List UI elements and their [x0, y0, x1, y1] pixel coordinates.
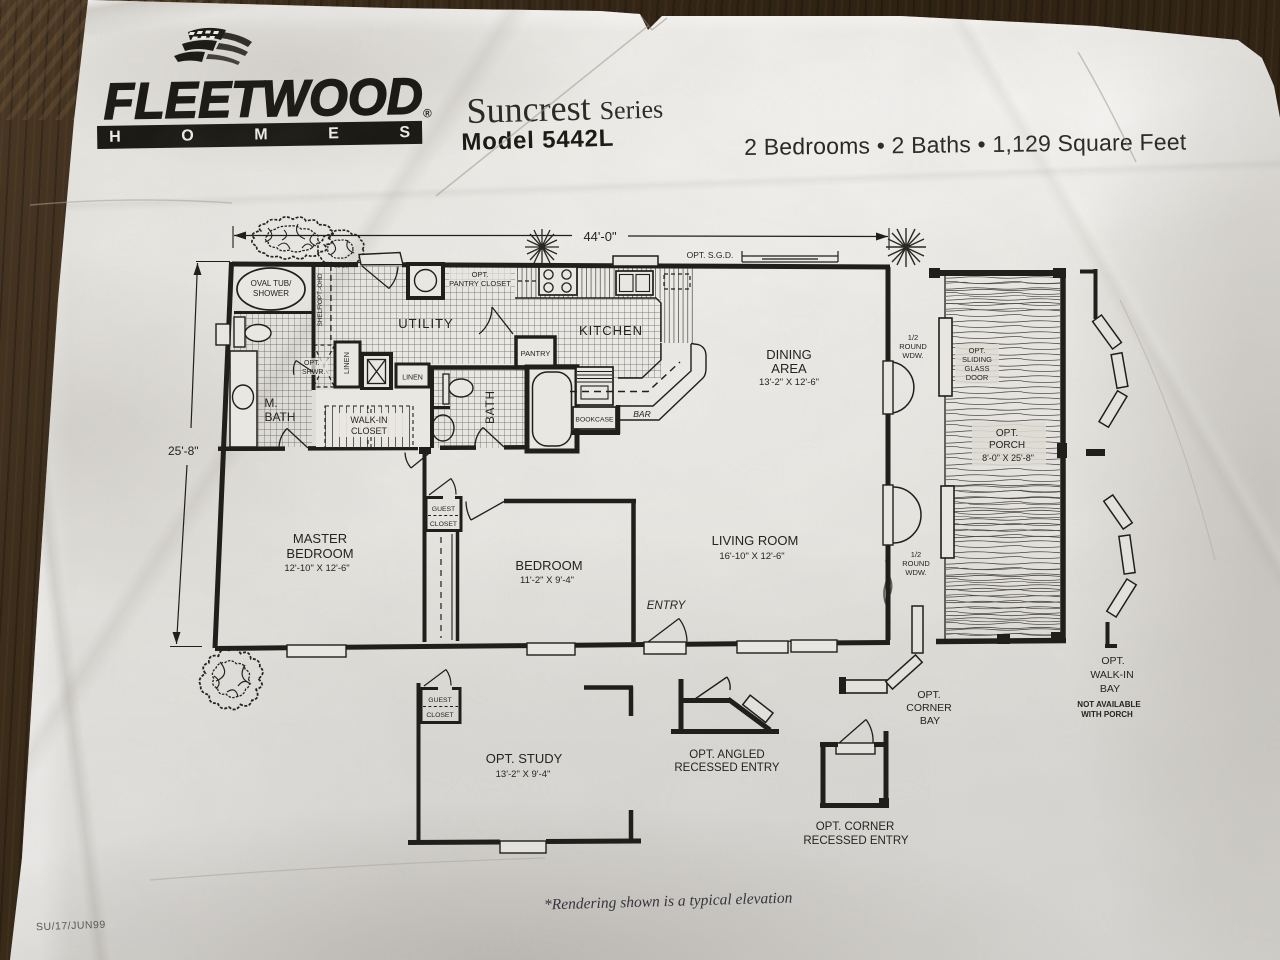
svg-text:SHWR.: SHWR. [302, 369, 325, 376]
svg-text:1/2: 1/2 [908, 333, 918, 342]
svg-text:OPT. ANGLED: OPT. ANGLED [689, 749, 764, 761]
svg-text:LINEN: LINEN [342, 352, 351, 374]
svg-text:AREA: AREA [771, 361, 807, 376]
svg-text:BAY: BAY [920, 715, 940, 727]
svg-text:CLOSET: CLOSET [351, 426, 388, 436]
svg-text:OPT.: OPT. [472, 270, 489, 279]
svg-text:BOOKCASE: BOOKCASE [575, 417, 614, 424]
svg-text:16'-10" X 12'-6": 16'-10" X 12'-6" [719, 551, 784, 562]
svg-text:KITCHEN: KITCHEN [579, 323, 643, 338]
svg-text:PANTRY: PANTRY [521, 349, 551, 358]
svg-text:8'-0" X 25'-8": 8'-0" X 25'-8" [982, 453, 1034, 463]
svg-text:RECESSED ENTRY: RECESSED ENTRY [803, 835, 909, 847]
svg-text:GLASS: GLASS [964, 364, 989, 373]
svg-text:WDW.: WDW. [905, 568, 926, 577]
svg-text:BAR: BAR [633, 409, 650, 419]
svg-text:OPT.: OPT. [996, 428, 1018, 439]
svg-text:NOT AVAILABLE: NOT AVAILABLE [1077, 700, 1141, 709]
svg-text:DOOR: DOOR [966, 373, 989, 382]
svg-text:OPT. CORNER: OPT. CORNER [816, 821, 895, 833]
svg-text:BAY: BAY [1100, 683, 1120, 695]
svg-text:PORCH: PORCH [989, 440, 1025, 451]
svg-text:DINING: DINING [766, 347, 812, 362]
svg-text:GUEST: GUEST [428, 697, 451, 704]
svg-text:LINEN: LINEN [402, 375, 423, 382]
svg-text:RECESSED ENTRY: RECESSED ENTRY [674, 762, 780, 774]
svg-text:CLOSET: CLOSET [430, 521, 457, 528]
svg-text:ENTRY: ENTRY [647, 600, 687, 612]
svg-text:BEDROOM: BEDROOM [515, 558, 582, 573]
svg-text:CORNER: CORNER [906, 702, 952, 714]
svg-text:1/2: 1/2 [911, 550, 921, 559]
svg-text:CLOSET: CLOSET [426, 712, 453, 719]
svg-text:OPT. S.G.D.: OPT. S.G.D. [687, 250, 734, 260]
svg-text:SHOWER: SHOWER [253, 289, 289, 298]
svg-text:OPT.: OPT. [917, 689, 940, 701]
svg-text:BEDROOM: BEDROOM [286, 546, 353, 561]
svg-text:OVAL TUB/: OVAL TUB/ [251, 279, 293, 288]
svg-text:12'-10" X 12'-6": 12'-10" X 12'-6" [284, 563, 349, 574]
svg-text:ROUND: ROUND [899, 342, 927, 351]
svg-text:11'-2" X 9'-4": 11'-2" X 9'-4" [520, 575, 574, 586]
svg-text:OPT.: OPT. [1101, 655, 1124, 667]
svg-text:MASTER: MASTER [293, 531, 347, 546]
svg-text:25'-8": 25'-8" [168, 444, 199, 458]
svg-text:WALK-IN: WALK-IN [1090, 669, 1133, 681]
svg-text:OPT.: OPT. [304, 360, 320, 367]
svg-text:SLIDING: SLIDING [962, 355, 992, 364]
svg-text:13'-2" X 12'-6": 13'-2" X 12'-6" [759, 377, 819, 388]
svg-text:M.: M. [264, 396, 277, 410]
svg-text:WITH PORCH: WITH PORCH [1081, 710, 1133, 719]
svg-text:44'-0": 44'-0" [583, 229, 617, 244]
svg-text:PANTRY CLOSET: PANTRY CLOSET [449, 279, 511, 288]
svg-text:OPT.: OPT. [969, 346, 986, 355]
svg-text:BATH: BATH [264, 410, 295, 424]
svg-text:SHELF/OPT.-OHD: SHELF/OPT.-OHD [317, 273, 324, 326]
svg-text:WALK-IN: WALK-IN [350, 415, 387, 425]
svg-text:WDW.: WDW. [902, 351, 923, 360]
svg-text:BATH: BATH [485, 390, 497, 424]
svg-text:OPT. STUDY: OPT. STUDY [486, 751, 563, 766]
svg-text:LIVING ROOM: LIVING ROOM [712, 533, 799, 548]
svg-text:GUEST: GUEST [432, 506, 455, 513]
svg-text:13'-2" X 9'-4": 13'-2" X 9'-4" [496, 769, 551, 780]
svg-text:UTILITY: UTILITY [398, 316, 453, 331]
svg-text:ROUND: ROUND [902, 559, 930, 568]
